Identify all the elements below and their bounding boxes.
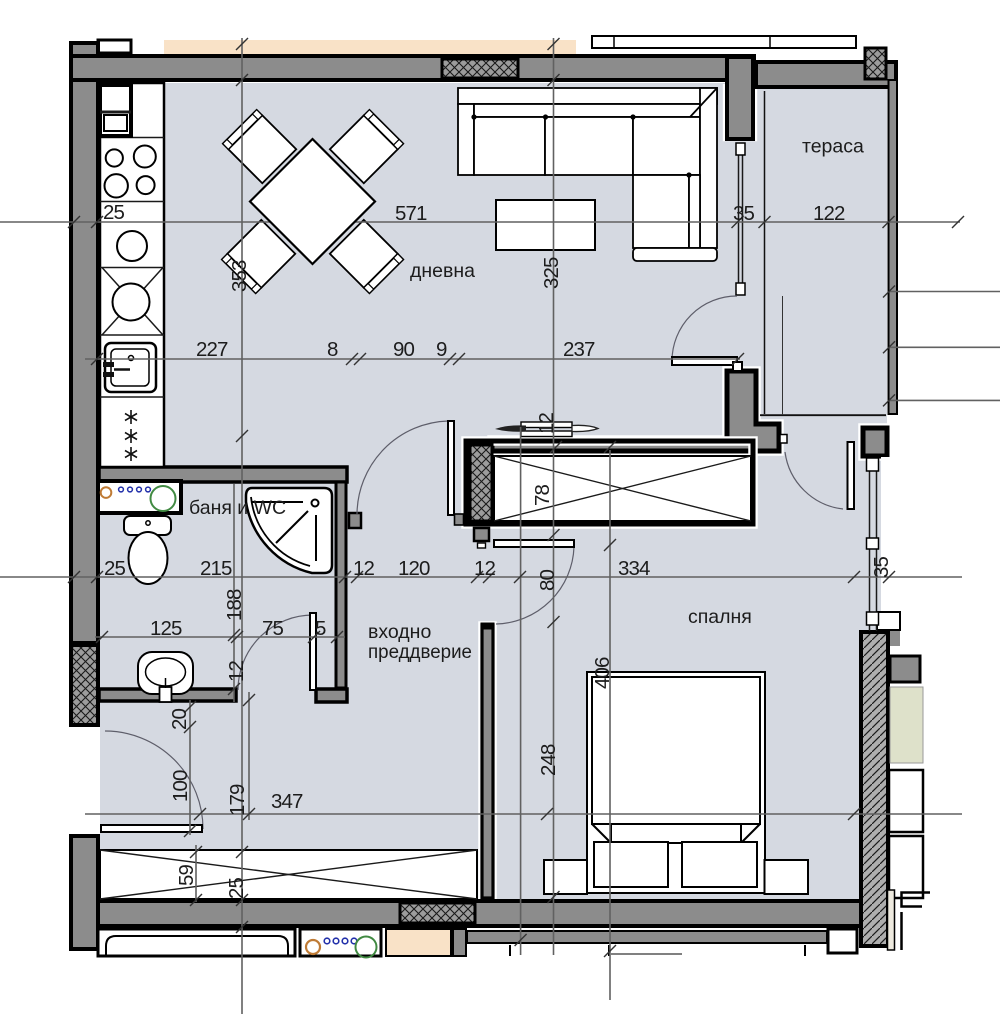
svg-text:347: 347 [271,790,303,813]
svg-text:80: 80 [536,569,559,591]
svg-text:59: 59 [175,864,198,886]
svg-text:8: 8 [327,338,338,361]
svg-text:25: 25 [225,877,248,899]
svg-text:78: 78 [531,484,554,506]
svg-text:25: 25 [104,557,126,580]
svg-text:35: 35 [733,202,755,225]
svg-text:325: 325 [540,257,563,289]
svg-text:120: 120 [398,557,430,580]
svg-text:5: 5 [315,617,326,640]
svg-text:25: 25 [103,201,125,224]
svg-text:334: 334 [618,557,650,580]
svg-text:входно: входно [368,621,431,643]
svg-text:122: 122 [813,202,845,225]
svg-text:215: 215 [200,557,232,580]
svg-text:125: 125 [150,617,182,640]
svg-text:571: 571 [395,202,427,225]
svg-text:227: 227 [196,338,228,361]
svg-text:12: 12 [474,557,496,580]
svg-text:спалня: спалня [688,606,752,628]
svg-text:100: 100 [169,770,192,802]
svg-text:дневна: дневна [410,260,475,282]
svg-text:237: 237 [563,338,595,361]
svg-text:баня и WC: баня и WC [189,497,286,519]
svg-text:248: 248 [537,744,560,776]
svg-text:тераса: тераса [802,136,864,158]
svg-text:20: 20 [168,708,191,730]
svg-text:406: 406 [591,657,614,689]
svg-text:преддверие: преддверие [368,641,472,663]
svg-text:12: 12 [225,660,248,682]
svg-text:12: 12 [353,557,375,580]
svg-text:12: 12 [535,412,558,434]
svg-text:90: 90 [393,338,415,361]
svg-text:9: 9 [436,338,447,361]
svg-text:75: 75 [262,617,284,640]
svg-text:188: 188 [223,589,246,621]
svg-text:353: 353 [228,260,251,292]
svg-text:35: 35 [870,556,893,578]
svg-text:179: 179 [226,784,249,816]
